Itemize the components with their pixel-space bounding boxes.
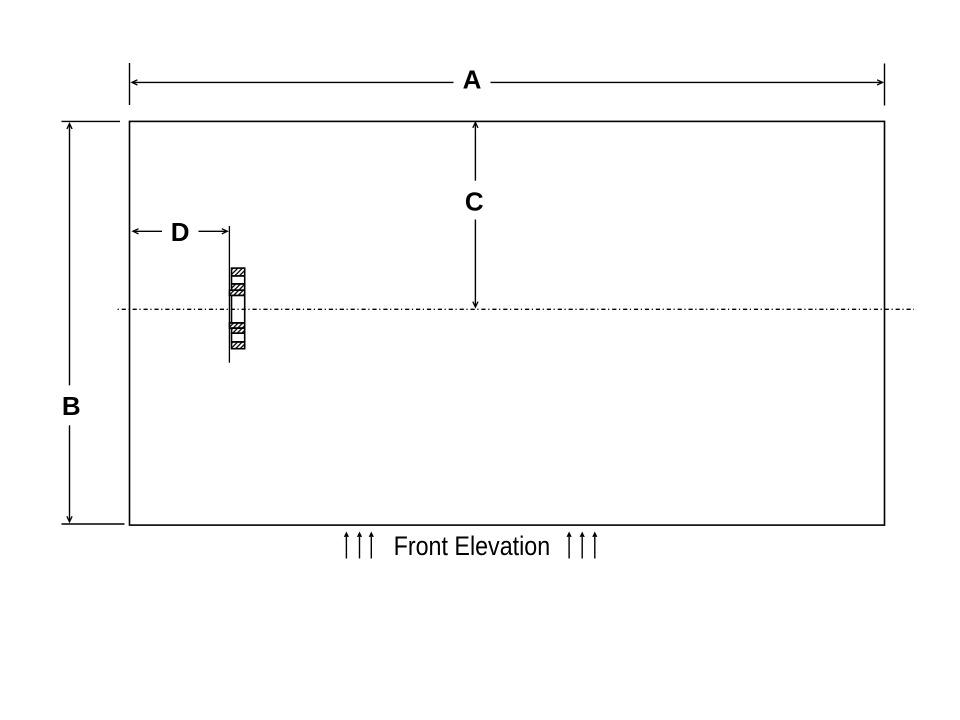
- svg-text:Front Elevation: Front Elevation: [394, 531, 551, 561]
- svg-text:B: B: [62, 391, 81, 421]
- svg-text:D: D: [171, 217, 190, 247]
- svg-text:A: A: [463, 65, 482, 95]
- svg-text:C: C: [465, 187, 484, 217]
